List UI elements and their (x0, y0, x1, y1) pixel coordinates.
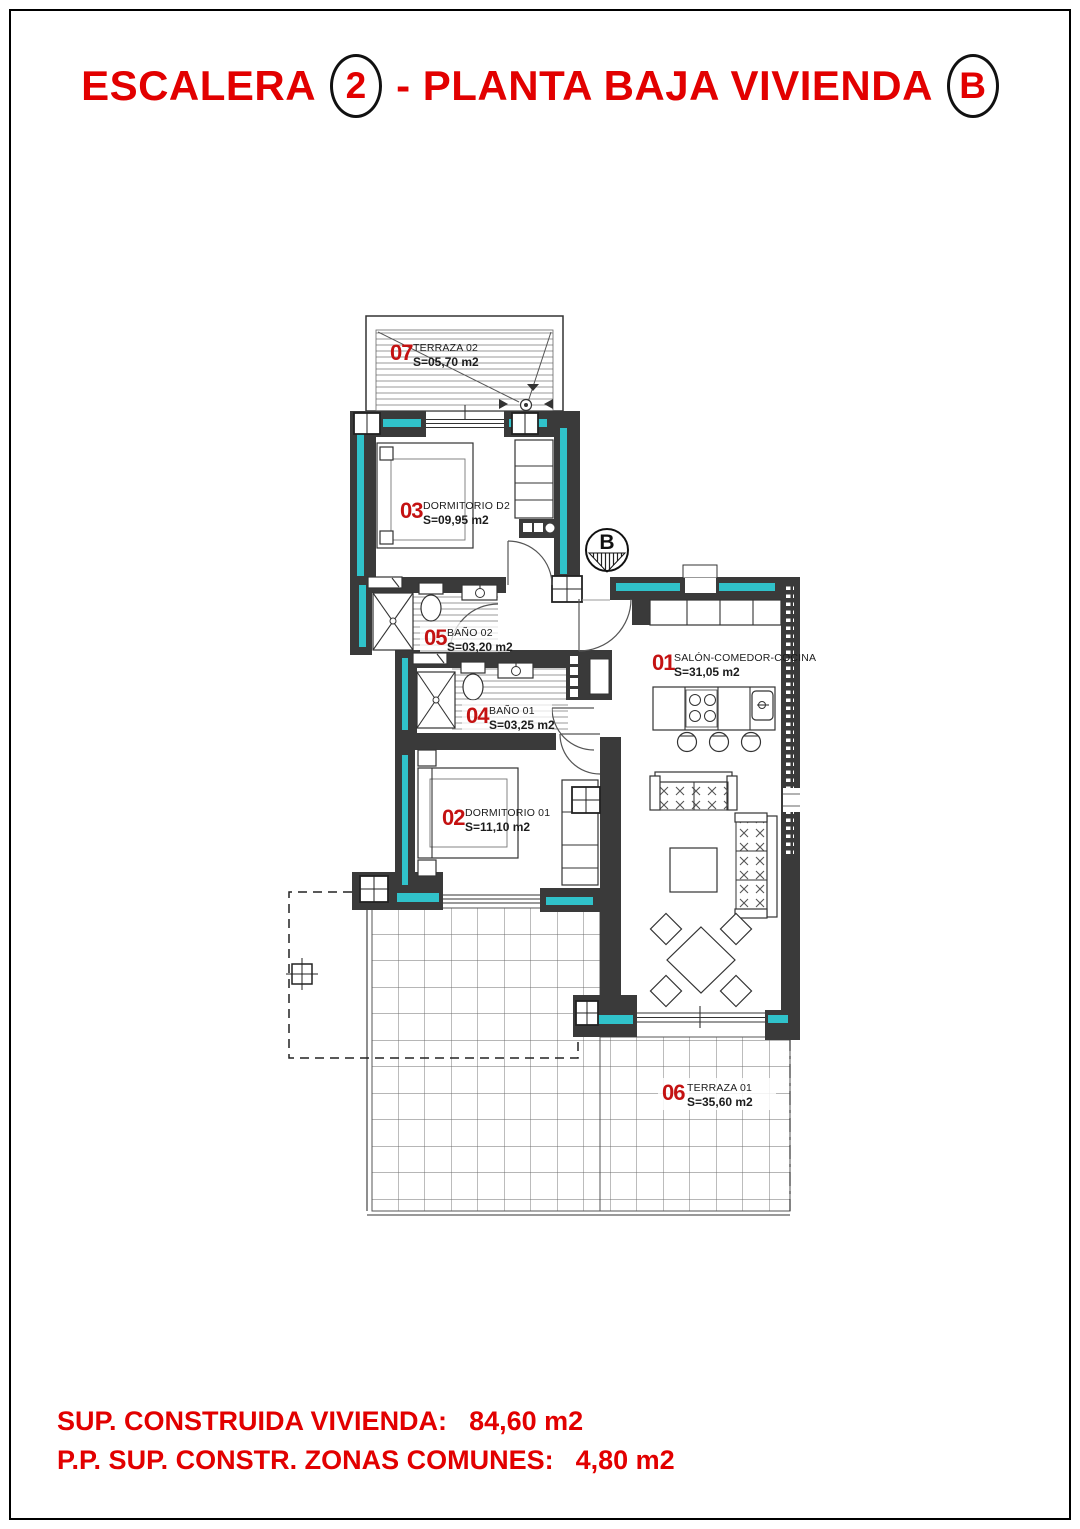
svg-text:BAÑO 01: BAÑO 01 (489, 704, 535, 717)
column-salon-sw (576, 1001, 598, 1025)
sofa-three-seat (735, 813, 777, 918)
window-dormitorio-01 (443, 895, 540, 903)
sofa-two-seat (650, 772, 737, 810)
cabinet (413, 653, 447, 664)
dining-chair (650, 913, 681, 944)
door-dormitorio-d2 (508, 541, 552, 585)
dining-chair (720, 975, 751, 1006)
svg-text:03: 03 (400, 498, 423, 523)
wall-gap (685, 578, 716, 593)
sliding-door-salon (637, 1006, 765, 1028)
cabinet (368, 577, 402, 588)
dining-chair (650, 975, 681, 1006)
room-label-terraza-02: 07 TERRAZA 02 S=05,70 m2 (390, 340, 479, 369)
dormitorio-d2 (377, 440, 558, 548)
pillow (380, 531, 393, 544)
svg-text:DORMITORIO 01: DORMITORIO 01 (465, 807, 550, 819)
nightstand (418, 750, 436, 766)
svg-text:04: 04 (466, 703, 490, 728)
bar-stools (678, 733, 761, 752)
svg-text:TERRAZA 01: TERRAZA 01 (687, 1082, 752, 1094)
summary-line-1: SUP. CONSTRUIDA VIVIENDA:84,60 m2 (57, 1402, 675, 1441)
summary-line-2: P.P. SUP. CONSTR. ZONAS COMUNES:4,80 m2 (57, 1441, 675, 1480)
pillow (380, 447, 393, 460)
floor-plan: B 07 TERRAZA 02 S=05,70 m2 03 DORMITORIO… (0, 0, 1080, 1529)
column-top-right (512, 413, 538, 434)
svg-text:S=35,60 m2: S=35,60 m2 (687, 1095, 753, 1109)
kitchen-counter (650, 600, 781, 625)
svg-text:01: 01 (652, 650, 675, 675)
room-label-terraza-01: 06 TERRAZA 01 S=35,60 m2 (658, 1078, 776, 1110)
svg-text:S=09,95 m2: S=09,95 m2 (423, 513, 489, 527)
column-top-left (354, 413, 380, 434)
room-label-dormitorio-01: 02 DORMITORIO 01 S=11,10 m2 (442, 805, 550, 834)
ac-unit (519, 519, 558, 538)
coffee-table (670, 848, 717, 892)
room-label-dormitorio-d2: 03 DORMITORIO D2 S=09,95 m2 (400, 498, 510, 527)
nightstand (418, 860, 436, 876)
svg-text:S=03,20 m2: S=03,20 m2 (447, 640, 513, 654)
pillar-notch (683, 565, 717, 578)
dining-set (650, 913, 751, 1006)
room-label-bano-02: 05 BAÑO 02 S=03,20 m2 (420, 622, 513, 654)
washbasin (462, 585, 497, 600)
wardrobe-d2 (515, 440, 553, 518)
summary-line-1-label: SUP. CONSTRUIDA VIVIENDA: (57, 1406, 447, 1436)
svg-text:SALÓN-COMEDOR-COCINA: SALÓN-COMEDOR-COCINA (674, 651, 816, 664)
wardrobe-01 (562, 780, 600, 885)
corner-column-sw (360, 876, 388, 902)
entrance-letter: B (599, 531, 614, 554)
area-summary: SUP. CONSTRUIDA VIVIENDA:84,60 m2 P.P. S… (57, 1402, 675, 1480)
shower-tray (417, 672, 455, 728)
summary-line-2-label: P.P. SUP. CONSTR. ZONAS COMUNES: (57, 1445, 554, 1475)
terraza-01 (367, 892, 790, 1215)
plan-sheet: ESCALERA 2 - PLANTA BAJA VIVIENDA B (0, 0, 1080, 1529)
room-label-bano-01: 04 BAÑO 01 S=03,25 m2 (462, 700, 555, 732)
svg-text:S=05,70 m2: S=05,70 m2 (413, 355, 479, 369)
shower-tray (373, 593, 413, 650)
svg-text:05: 05 (424, 625, 447, 650)
svg-text:S=03,25 m2: S=03,25 m2 (489, 718, 555, 732)
dining-table (667, 927, 735, 993)
svg-text:BAÑO 02: BAÑO 02 (447, 626, 493, 639)
entrance-marker: B (586, 529, 628, 572)
svg-text:07: 07 (390, 340, 413, 365)
summary-line-1-value: 84,60 m2 (469, 1406, 583, 1436)
svg-text:06: 06 (662, 1080, 685, 1105)
svg-text:S=31,05 m2: S=31,05 m2 (674, 665, 740, 679)
toilet (419, 583, 443, 621)
svg-text:S=11,10 m2: S=11,10 m2 (465, 820, 530, 834)
door-entry (579, 599, 631, 651)
svg-text:TERRAZA 02: TERRAZA 02 (413, 342, 478, 354)
kitchen-sink (752, 691, 773, 720)
summary-line-2-value: 4,80 m2 (576, 1445, 675, 1475)
kitchen-island (653, 687, 775, 730)
toilet (461, 662, 485, 700)
svg-text:DORMITORIO D2: DORMITORIO D2 (423, 500, 510, 512)
entry-column (552, 576, 582, 602)
washbasin (498, 663, 533, 678)
svg-text:02: 02 (442, 805, 465, 830)
